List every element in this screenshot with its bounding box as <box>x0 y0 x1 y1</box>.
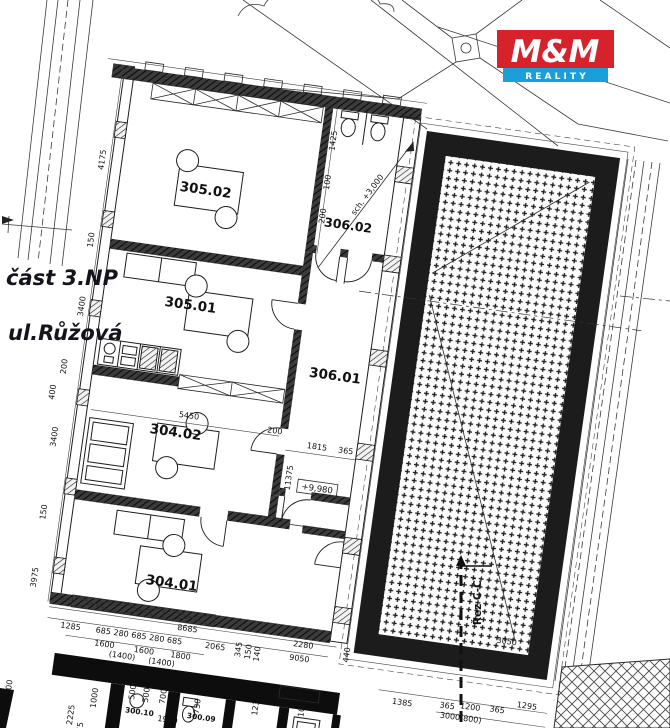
dimension-label: 200 <box>59 358 70 374</box>
floor-plan-page: 44030501385365120036512953000(800) Řez C… <box>0 0 670 728</box>
dimension-label: 2700 <box>3 679 15 700</box>
dimension-label: 685 <box>95 625 111 636</box>
room-label: 306.02 <box>323 214 373 236</box>
dimension-label: 3975 <box>29 567 41 588</box>
dimension-label: 685 <box>166 635 182 646</box>
dimension-label: 1600 <box>133 645 154 657</box>
logo-reality-text: R E A L I T Y <box>525 72 586 82</box>
stair-label: sch. +3,000 <box>349 173 385 217</box>
level-marker-upper: +9,980 <box>297 479 338 497</box>
logo-mm-text: M&M <box>511 34 600 70</box>
dimension-label: 685 <box>131 630 147 641</box>
survey-marker-icon <box>2 216 72 233</box>
dimension-label: 280 <box>113 628 129 639</box>
mm-reality-logo: M&M R E A L I T Y <box>497 30 614 82</box>
dimension-label: 1815 <box>306 441 327 453</box>
dimension-label: 1085 <box>296 696 308 717</box>
dimension-label: 280 <box>149 633 165 644</box>
terrace-dotted-surface <box>379 156 596 655</box>
street-caption: ul.Růžová <box>8 320 123 345</box>
section-label: Řez C-C' <box>471 577 484 625</box>
dimension-label: 1385 <box>391 697 412 709</box>
desk-304-01 <box>133 530 204 608</box>
tree-icon <box>238 0 394 16</box>
stair-arrow: sch. +3,000 <box>318 131 415 279</box>
room-label: 300.09 <box>186 711 216 724</box>
dimension-label: 9050 <box>289 653 310 665</box>
dimension-label: 100 <box>322 174 333 190</box>
dimension-label: 150 <box>38 504 49 520</box>
room-label: 300.10 <box>124 705 154 718</box>
dimension-label: 2280 <box>293 639 314 651</box>
dimension-label: 1200 <box>460 701 481 713</box>
neighbour-building-hatch <box>554 659 670 728</box>
dimension-label: 1425 <box>327 130 339 151</box>
dimension-label: 365 <box>338 445 354 456</box>
floor-plan-drawing: 44030501385365120036512953000(800) Řez C… <box>0 0 670 728</box>
dimension-label: 3400 <box>48 426 60 447</box>
dimension-label: 4175 <box>96 149 108 170</box>
wall-b-windows <box>178 375 285 404</box>
dimension-label: 500 <box>141 687 152 703</box>
dimension-label: (1400) <box>108 650 136 663</box>
dimension-label: 140 <box>252 646 263 662</box>
dimension-label: 1230 <box>250 695 262 716</box>
dimension-label: 1285 <box>60 621 81 633</box>
svg-text:+9,980: +9,980 <box>301 482 334 496</box>
dimension-label: 150 <box>86 232 97 248</box>
room-label: 306.01 <box>308 365 362 388</box>
dimension-label: 8685 <box>177 623 198 635</box>
desk-305-01 <box>177 274 257 354</box>
dimension-label: 3400 <box>76 296 88 317</box>
dimension-label: 1970 <box>157 714 178 726</box>
dimension-label: 5450 <box>178 410 199 422</box>
dimension-label: 1295 <box>516 700 537 712</box>
dimension-label: 2065 <box>204 641 225 653</box>
dimension-label: 11375 <box>283 465 295 491</box>
dimension-label: 75 <box>75 722 85 728</box>
floor-caption: část 3.NP <box>6 266 119 290</box>
dimension-label: 1000 <box>89 687 101 708</box>
dimension-label: 2225 <box>65 704 77 725</box>
dimension-label: 365 <box>489 704 505 715</box>
dimension-label: 440 <box>341 647 352 663</box>
sofa-304-02 <box>81 418 134 489</box>
dimension-label: 1600 <box>94 638 115 650</box>
dimension-label: 400 <box>47 384 58 400</box>
